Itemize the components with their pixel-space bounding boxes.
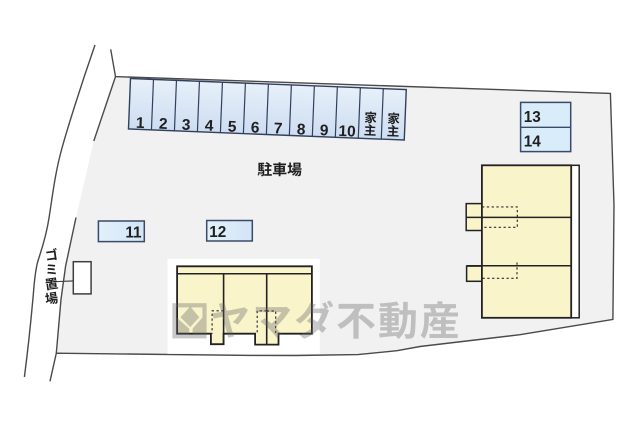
svg-text:13: 13 [524, 109, 541, 126]
svg-text:11: 11 [125, 224, 142, 241]
svg-text:14: 14 [524, 134, 542, 151]
svg-text:4: 4 [204, 118, 214, 135]
svg-text:12: 12 [209, 224, 226, 241]
svg-text:5: 5 [227, 118, 237, 135]
svg-text:10: 10 [338, 123, 356, 141]
svg-text:2: 2 [159, 116, 168, 133]
svg-text:9: 9 [319, 122, 329, 139]
svg-text:3: 3 [182, 117, 192, 134]
svg-text:1: 1 [136, 115, 146, 132]
svg-text:8: 8 [296, 121, 306, 138]
svg-text:7: 7 [273, 120, 282, 137]
svg-text:6: 6 [250, 119, 260, 136]
